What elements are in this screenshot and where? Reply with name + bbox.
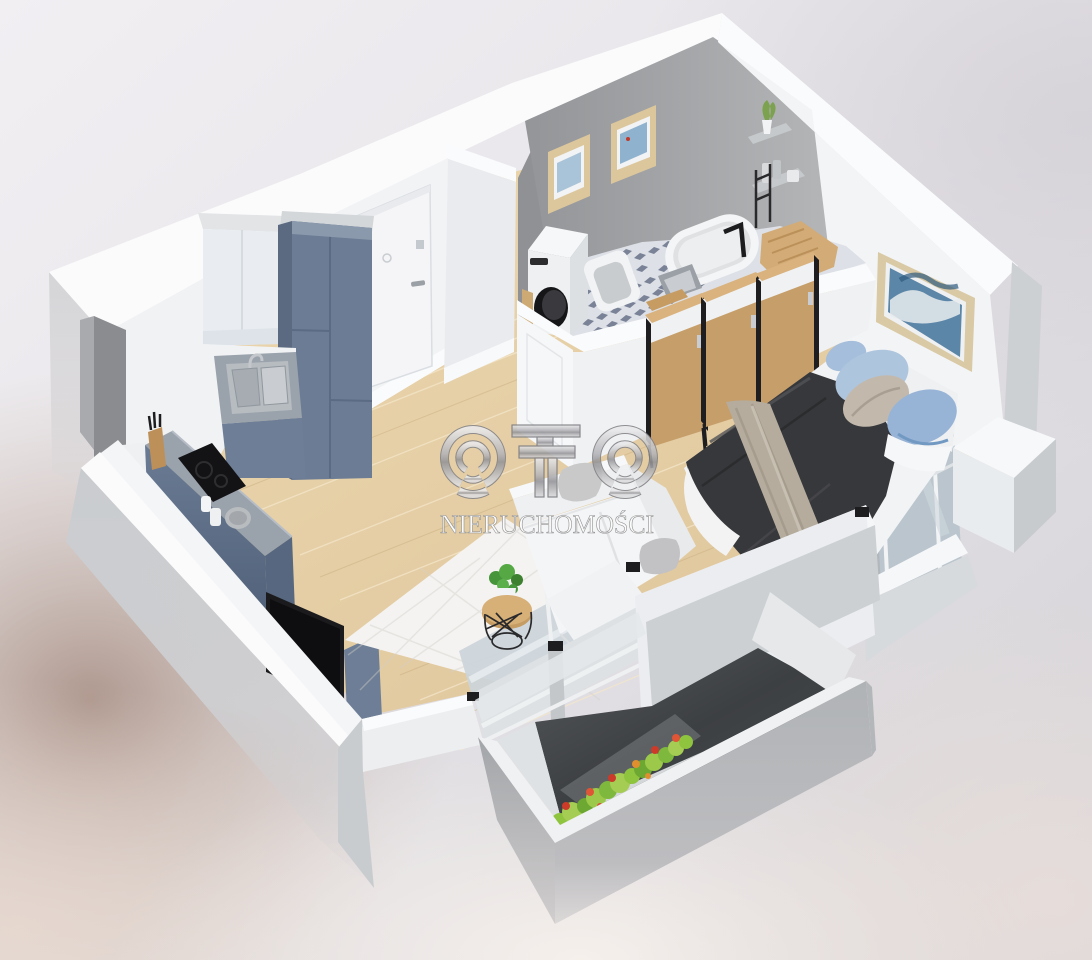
svg-text:NIERUCHOMOŚCI: NIERUCHOMOŚCI bbox=[440, 510, 654, 539]
